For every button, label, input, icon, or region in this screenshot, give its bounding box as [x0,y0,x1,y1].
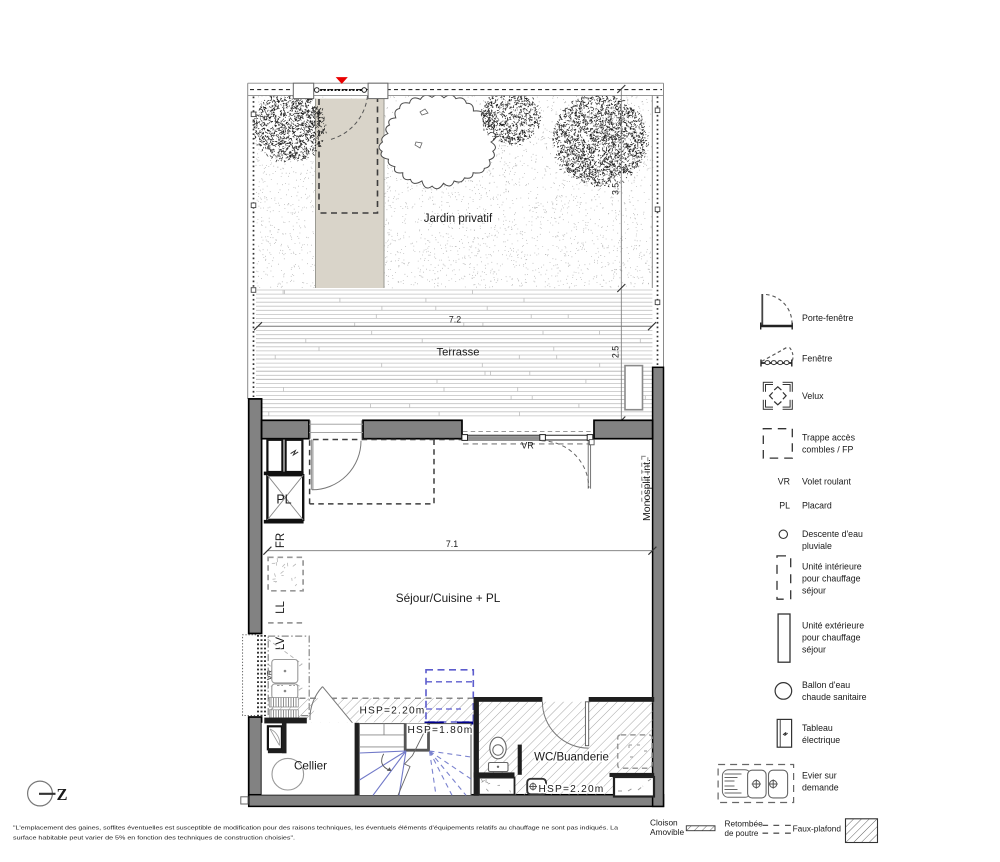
svg-text:Trappe accès: Trappe accès [802,433,856,443]
svg-text:Cloison: Cloison [650,818,678,828]
svg-text:"L'emplacement des gaines, sof: "L'emplacement des gaines, soffites éven… [13,826,619,832]
svg-text:PL: PL [779,501,790,511]
svg-text:électrique: électrique [802,735,840,745]
svg-text:Terrasse: Terrasse [437,347,480,359]
svg-text:Evier sur: Evier sur [802,771,837,781]
svg-text:Faux-plafond: Faux-plafond [793,824,842,834]
svg-text:Volet roulant: Volet roulant [802,477,851,487]
svg-text:Amovible: Amovible [650,827,685,837]
svg-text:Séjour/Cuisine + PL: Séjour/Cuisine + PL [396,591,501,605]
svg-text:Unité intérieure: Unité intérieure [802,562,862,572]
svg-text:séjour: séjour [802,586,826,596]
svg-text:2.5: 2.5 [610,346,620,358]
svg-text:Fenêtre: Fenêtre [802,354,832,364]
svg-text:FR: FR [275,533,287,548]
svg-text:combles / FP: combles / FP [802,445,853,455]
svg-text:demande: demande [802,783,839,793]
svg-text:Ballon d'eau: Ballon d'eau [802,680,850,690]
svg-text:Placard: Placard [802,501,832,511]
svg-text:PL: PL [276,493,291,507]
svg-text:3.5: 3.5 [610,183,620,195]
svg-text:Monosplit int.: Monosplit int. [641,459,653,521]
svg-text:pour chauffage: pour chauffage [802,574,861,584]
svg-text:séjour: séjour [802,645,826,655]
svg-text:VR: VR [521,441,534,451]
svg-text:de poutre: de poutre [725,829,759,838]
svg-text:Descente d'eau: Descente d'eau [802,529,863,539]
svg-text:7.1: 7.1 [446,539,458,549]
svg-text:Z: Z [57,785,68,804]
svg-text:Velux: Velux [802,391,824,401]
svg-text:LL: LL [275,601,287,614]
svg-text:Jardin privatif: Jardin privatif [424,213,493,225]
svg-text:pour chauffage: pour chauffage [802,633,861,643]
svg-text:Tableau: Tableau [802,723,833,733]
svg-text:HSP=1.80m: HSP=1.80m [407,725,473,736]
svg-text:Cellier: Cellier [294,760,327,773]
svg-text:Retombée: Retombée [725,819,764,829]
svg-text:VR: VR [778,477,790,487]
svg-text:WC/Buanderie: WC/Buanderie [534,752,609,764]
svg-text:chaude sanitaire: chaude sanitaire [802,692,867,702]
svg-text:Unité extérieure: Unité extérieure [802,621,864,631]
svg-text:Porte-fenêtre: Porte-fenêtre [802,313,853,323]
svg-text:LV: LV [275,637,287,651]
svg-text:HSP=2.20m: HSP=2.20m [538,784,604,795]
svg-text:7.2: 7.2 [449,315,461,325]
svg-text:surface habitable peut varier: surface habitable peut varier de 5% en f… [13,836,295,842]
svg-text:pluviale: pluviale [802,541,832,551]
svg-text:HSP=2.20m: HSP=2.20m [359,706,425,717]
